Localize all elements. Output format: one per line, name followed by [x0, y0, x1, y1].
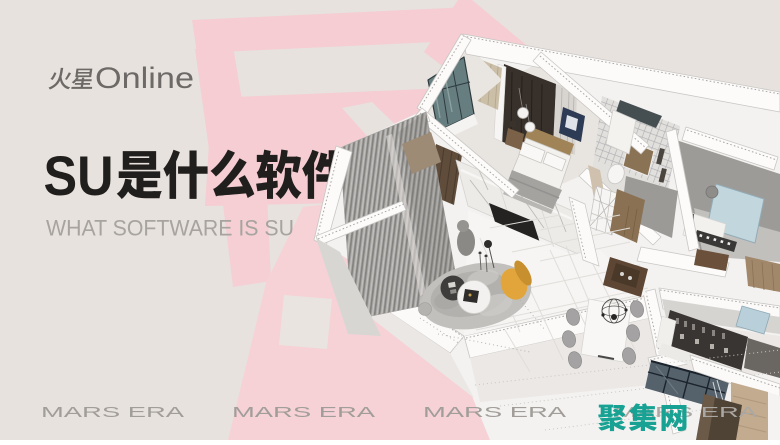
svg-text:MARS ERA: MARS ERA [41, 404, 184, 421]
svg-text:MARS ERA: MARS ERA [232, 404, 375, 421]
svg-text:Online: Online [95, 62, 194, 95]
svg-text:MARS ERA: MARS ERA [423, 404, 566, 421]
svg-text:SU: SU [44, 145, 114, 207]
svg-text:WHAT SOFTWARE IS SU: WHAT SOFTWARE IS SU [46, 216, 294, 241]
